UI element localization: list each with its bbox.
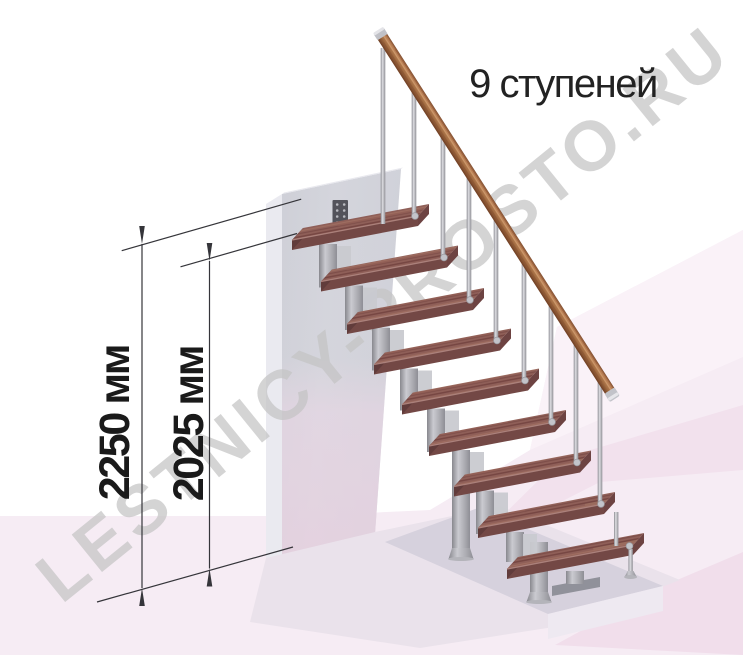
svg-text:2250 мм: 2250 мм — [91, 346, 139, 500]
svg-text:9 ступеней: 9 ступеней — [469, 62, 657, 106]
svg-text:2025 мм: 2025 мм — [165, 347, 213, 501]
